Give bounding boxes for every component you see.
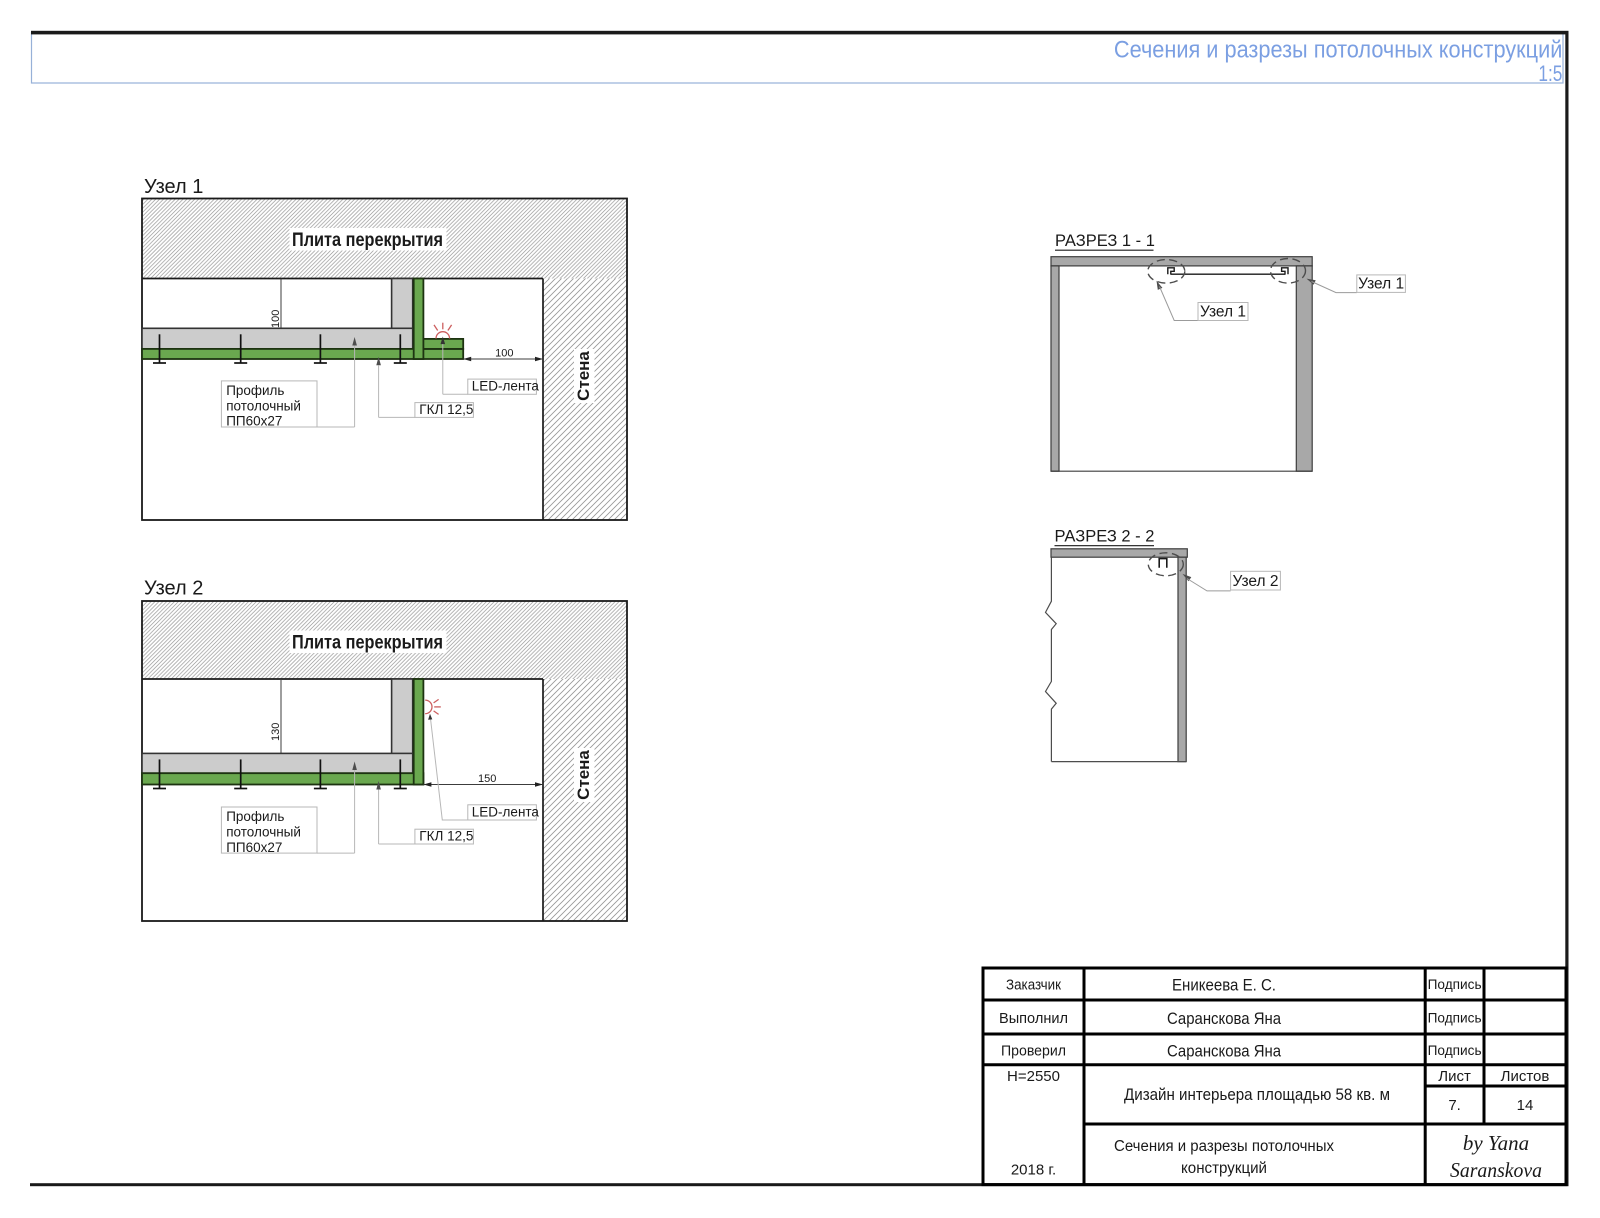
svg-text:by Yana: by Yana [1463, 1131, 1529, 1155]
svg-text:7.: 7. [1448, 1097, 1461, 1114]
svg-text:Саранскова Яна: Саранскова Яна [1167, 1042, 1281, 1061]
svg-text:Узел 1: Узел 1 [144, 176, 203, 198]
svg-text:130: 130 [270, 723, 282, 741]
svg-text:Узел 1: Узел 1 [1200, 303, 1246, 320]
svg-text:Проверил: Проверил [1001, 1043, 1066, 1060]
svg-text:Н=2550: Н=2550 [1007, 1068, 1060, 1085]
svg-text:Дизайн интерьера площадью 58 к: Дизайн интерьера площадью 58 кв. м [1124, 1086, 1390, 1104]
svg-text:Выполнил: Выполнил [999, 1010, 1068, 1027]
svg-text:2018 г.: 2018 г. [1011, 1162, 1056, 1179]
svg-text:потолочный: потолочный [226, 824, 301, 839]
svg-text:Листов: Листов [1501, 1068, 1550, 1085]
svg-text:конструкций: конструкций [1181, 1160, 1267, 1177]
svg-text:Узел 2: Узел 2 [1233, 573, 1279, 590]
svg-text:РАЗРЕЗ 1 - 1: РАЗРЕЗ 1 - 1 [1055, 232, 1155, 250]
svg-text:Еникеева Е. С.: Еникеева Е. С. [1172, 976, 1276, 995]
svg-text:потолочный: потолочный [226, 398, 301, 413]
svg-text:Сечения и разрезы потолочных к: Сечения и разрезы потолочных конструкций [1114, 37, 1563, 64]
svg-text:Подпись: Подпись [1428, 1042, 1482, 1058]
svg-text:Профиль: Профиль [226, 383, 284, 398]
svg-text:Подпись: Подпись [1428, 1010, 1482, 1026]
svg-text:Подпись: Подпись [1428, 976, 1482, 992]
svg-text:ПП60х27: ПП60х27 [226, 414, 282, 429]
svg-text:Лист: Лист [1438, 1068, 1471, 1085]
svg-text:100: 100 [270, 310, 282, 328]
svg-text:Сечения и разрезы потолочных: Сечения и разрезы потолочных [1114, 1138, 1334, 1155]
svg-text:Плита перекрытия: Плита перекрытия [292, 632, 443, 654]
svg-text:100: 100 [495, 347, 513, 359]
svg-text:РАЗРЕЗ 2 - 2: РАЗРЕЗ 2 - 2 [1055, 528, 1155, 546]
svg-text:Профиль: Профиль [226, 809, 284, 824]
svg-text:ГКЛ 12,5: ГКЛ 12,5 [419, 402, 473, 417]
svg-text:ГКЛ 12,5: ГКЛ 12,5 [419, 829, 473, 844]
svg-text:Узел 2: Узел 2 [144, 578, 203, 600]
svg-text:Стена: Стена [574, 351, 593, 401]
svg-text:ПП60х27: ПП60х27 [226, 840, 282, 855]
svg-text:150: 150 [478, 773, 496, 785]
svg-text:LED-лента: LED-лента [472, 379, 540, 394]
svg-text:Узел 1: Узел 1 [1358, 276, 1404, 293]
svg-text:Саранскова Яна: Саранскова Яна [1167, 1009, 1281, 1028]
svg-text:Заказчик: Заказчик [1006, 977, 1061, 994]
svg-text:Saranskova: Saranskova [1450, 1158, 1542, 1182]
svg-text:1:5: 1:5 [1538, 61, 1562, 86]
svg-text:14: 14 [1517, 1097, 1534, 1114]
svg-text:Стена: Стена [574, 750, 593, 800]
svg-text:LED-лента: LED-лента [472, 804, 540, 819]
svg-text:Плита перекрытия: Плита перекрытия [292, 229, 443, 251]
